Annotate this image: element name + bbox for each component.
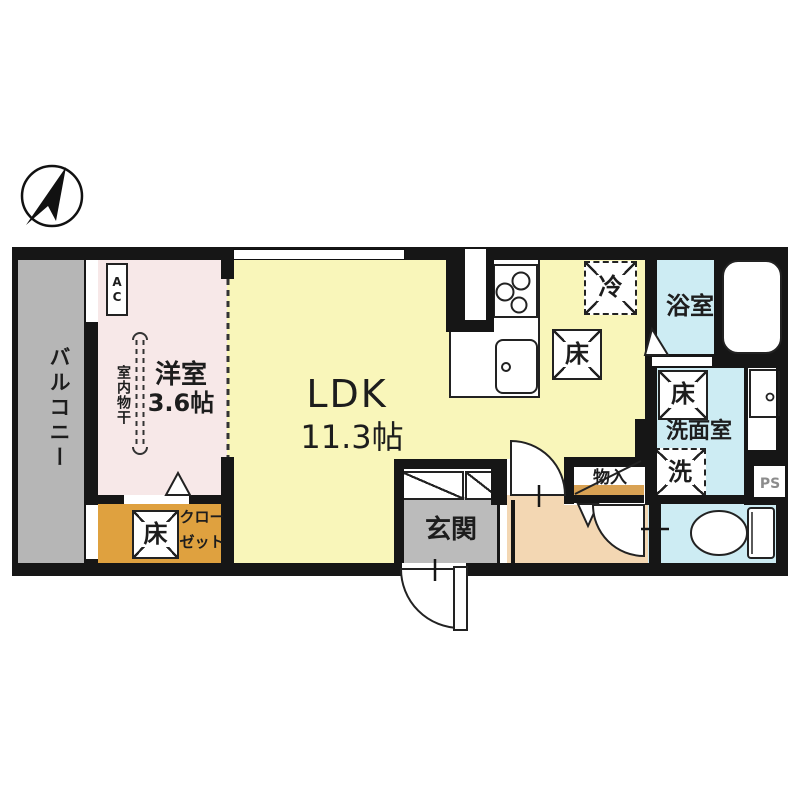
balcony-label: バルコニー: [24, 296, 70, 521]
washroom-label: 洗面室: [645, 420, 753, 444]
stove-burners-icon: [497, 273, 530, 313]
indoor-drying-label: 室内物干: [104, 347, 130, 442]
closet-label-line2: ゼット: [178, 534, 226, 551]
bathroom-label: 浴室: [650, 293, 730, 319]
toilet-icon: [691, 508, 774, 558]
western-room-name: 洋室: [131, 361, 231, 390]
closet-door-mark: [166, 473, 190, 495]
sink-faucet-icon: [502, 363, 510, 371]
front-door-swing: [401, 569, 460, 628]
ldk-name: LDK: [272, 374, 422, 416]
closet-label-line1: クロー: [178, 509, 226, 526]
front-door-leaf: [454, 567, 467, 630]
entrance-label: 玄関: [402, 516, 500, 545]
storage-label: 物入: [579, 469, 641, 488]
pipe-space-label: PS: [753, 477, 787, 492]
western-room-size: 3.6帖: [131, 390, 231, 416]
vanity-faucet-icon: [767, 394, 774, 401]
washroom-door-swing: [593, 505, 644, 556]
floor-plan: AC 冷 床 床 床 洗: [0, 0, 800, 800]
ldk-size: 11.3帖: [262, 420, 442, 455]
bath-door-mark: [645, 329, 668, 355]
